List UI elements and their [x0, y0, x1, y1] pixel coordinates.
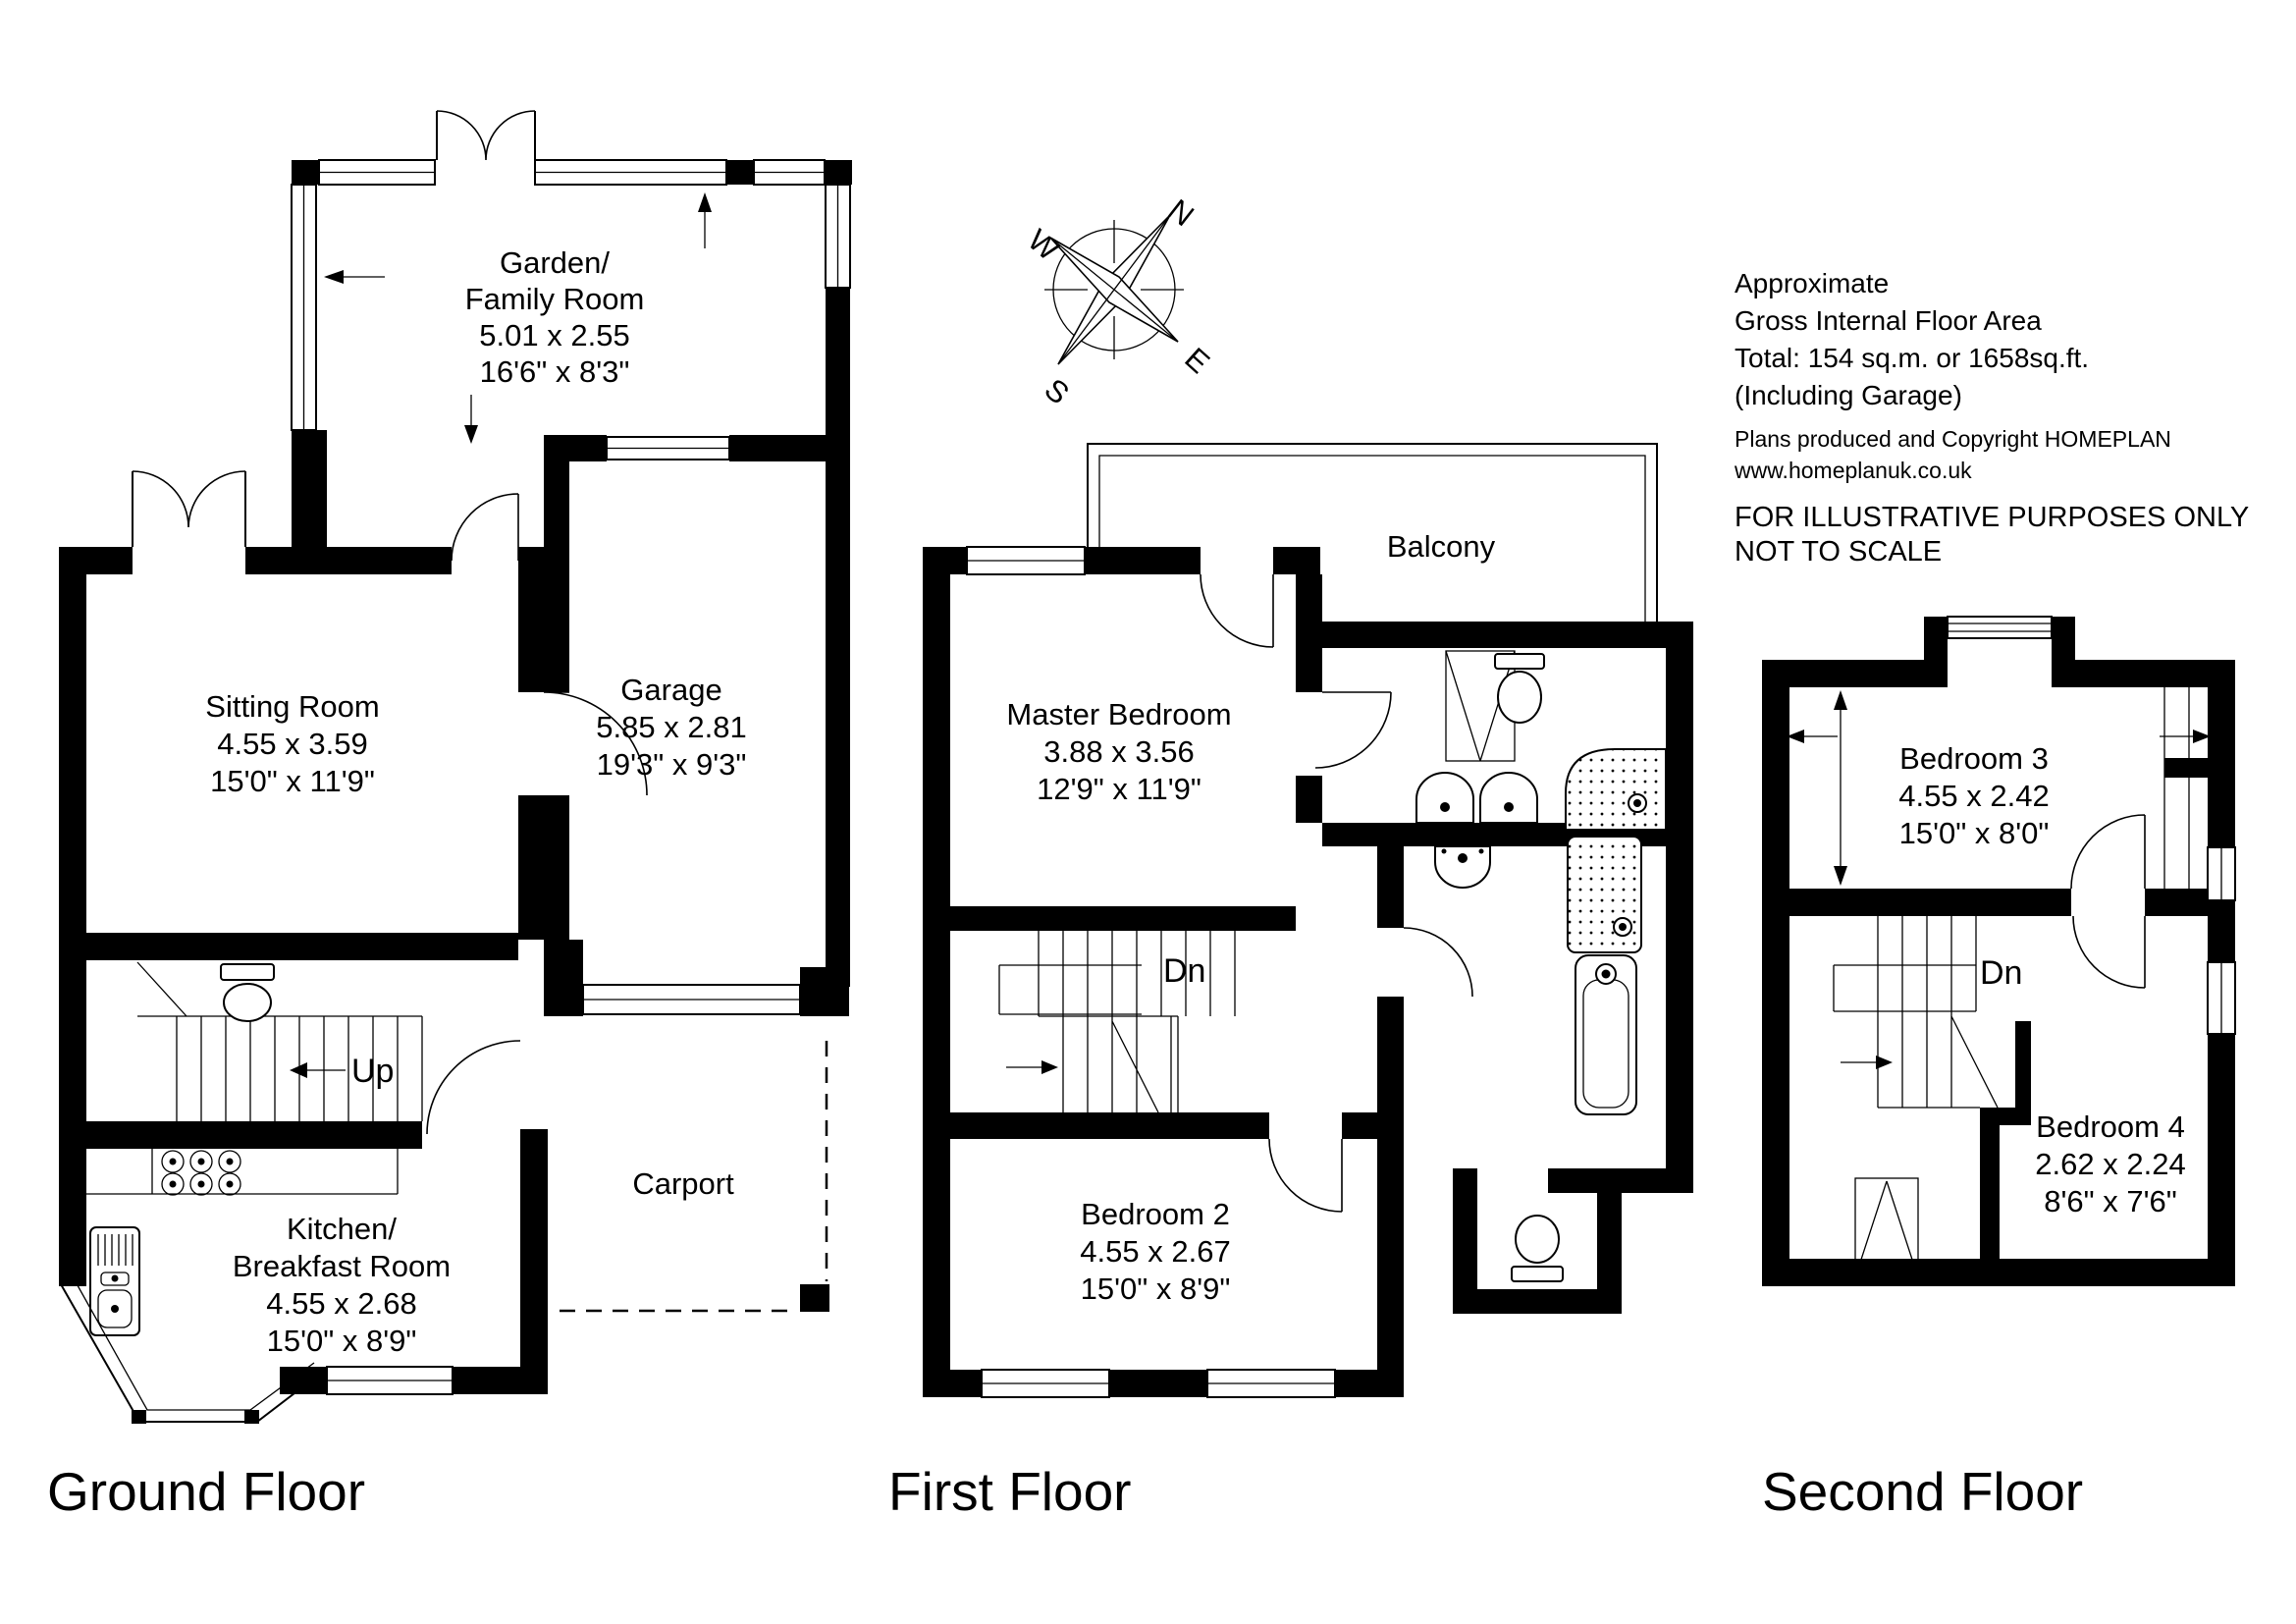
garage-name: Garage — [620, 673, 721, 707]
bedroom4-name: Bedroom 4 — [2036, 1110, 2185, 1144]
floorplan-canvas: Garden/ Family Room 5.01 x 2.55 16'6" x … — [0, 0, 2296, 1624]
kitchen-name-2: Breakfast Room — [233, 1249, 451, 1283]
master-bedroom-name: Master Bedroom — [1006, 697, 1231, 731]
sitting-door-arcs — [133, 471, 245, 527]
garden-room-dim-ft: 16'6" x 8'3" — [480, 354, 630, 389]
carport-name: Carport — [632, 1166, 734, 1201]
disclaimer-line-2: NOT TO SCALE — [1735, 536, 1942, 568]
copyright-line-1: Plans produced and Copyright HOMEPLAN — [1735, 426, 2171, 452]
bedroom4-door-arc — [2073, 916, 2145, 988]
main-shower — [1568, 837, 1641, 952]
bedroom4-dim-ft: 8'6" x 7'6" — [2044, 1184, 2177, 1218]
basin-left — [1416, 773, 1473, 823]
first-windows — [967, 547, 1335, 1397]
copyright-line-2: www.homeplanuk.co.uk — [1734, 458, 1972, 483]
garden-door-arcs — [437, 111, 535, 160]
second-floor-plan: Bedroom 3 4.55 x 2.42 15'0" x 8'0" Bedro… — [1762, 617, 2235, 1522]
garage-dim-ft: 19'3" x 9'3" — [597, 747, 747, 782]
master-bedroom-dim-m: 3.88 x 3.56 — [1043, 734, 1194, 769]
front-door-arc — [427, 1041, 520, 1134]
garden-room-name-1: Garden/ — [500, 245, 610, 280]
disclaimer-line-1: FOR ILLUSTRATIVE PURPOSES ONLY — [1735, 502, 2249, 533]
bath — [1575, 955, 1636, 1114]
dn-label-first: Dn — [1163, 952, 1205, 990]
balcony-name: Balcony — [1387, 529, 1496, 564]
kitchen-dim-m: 4.55 x 2.68 — [266, 1286, 416, 1321]
first-floor-title: First Floor — [888, 1461, 1132, 1522]
sitting-room-name: Sitting Room — [205, 689, 379, 724]
kitchen-hob — [86, 1149, 398, 1195]
dn-arrow-head-first — [1041, 1060, 1058, 1074]
second-floor-title: Second Floor — [1762, 1461, 2083, 1522]
bedroom4-dim-m: 2.62 x 2.24 — [2035, 1147, 2185, 1181]
info-block: Approximate Gross Internal Floor Area To… — [1734, 268, 2249, 568]
ground-stairs — [137, 962, 422, 1121]
hall-to-garden-door-arc — [452, 494, 518, 561]
ensuite-toilet — [1495, 654, 1544, 723]
compass-s: S — [1039, 372, 1076, 411]
compass-n: N — [1162, 192, 1201, 233]
first-floor-plan: Master Bedroom 3.88 x 3.56 12'9" x 11'9"… — [888, 444, 1693, 1522]
compass-rose: N W S E — [1022, 192, 1217, 411]
ground-floor-title: Ground Floor — [47, 1461, 365, 1522]
info-line-4: (Including Garage) — [1735, 380, 1962, 410]
info-line-3: Total: 154 sq.m. or 1658sq.ft. — [1735, 343, 2089, 373]
kitchen-sink — [90, 1227, 139, 1335]
dn-label-second: Dn — [1980, 954, 2022, 992]
garden-room-dim-m: 5.01 x 2.55 — [479, 318, 629, 352]
wc-toilet — [221, 964, 274, 1021]
garage-dim-m: 5.85 x 2.81 — [596, 710, 746, 744]
sitting-room-dim-ft: 15'0" x 11'9" — [210, 764, 375, 798]
wc-toilet-first — [1512, 1216, 1563, 1281]
up-arrow-head — [290, 1062, 307, 1078]
compass-e: E — [1178, 341, 1216, 380]
info-line-2: Gross Internal Floor Area — [1735, 305, 2042, 336]
garden-room-name-2: Family Room — [465, 282, 645, 316]
wardrobe — [1855, 1178, 1918, 1271]
basin-lower — [1435, 846, 1490, 888]
sitting-room-dim-m: 4.55 x 3.59 — [217, 727, 367, 761]
up-label: Up — [351, 1053, 394, 1090]
bathroom-door-arc — [1404, 928, 1472, 997]
info-line-1: Approximate — [1735, 268, 1889, 298]
ground-floor-plan: Garden/ Family Room 5.01 x 2.55 16'6" x … — [47, 111, 852, 1522]
kitchen-name-1: Kitchen/ — [287, 1212, 397, 1246]
bedroom3-door-arc — [2071, 815, 2145, 889]
bedroom2-dim-ft: 15'0" x 8'9" — [1081, 1272, 1231, 1306]
bedroom2-door-arc — [1269, 1139, 1342, 1212]
basin-right — [1480, 773, 1537, 823]
closet-partition — [2164, 687, 2189, 889]
balcony-door-arc — [1201, 574, 1273, 647]
master-door-arc — [1315, 692, 1391, 768]
balcony-outline — [1088, 444, 1657, 637]
bedroom2-dim-m: 4.55 x 2.67 — [1080, 1234, 1230, 1269]
bedroom2-name: Bedroom 2 — [1081, 1197, 1230, 1231]
bedroom3-name: Bedroom 3 — [1899, 741, 2049, 776]
bedroom3-dim-ft: 15'0" x 8'0" — [1899, 816, 2050, 850]
corner-shower — [1566, 749, 1666, 830]
sitting-door-leaves — [133, 471, 245, 547]
master-bedroom-dim-ft: 12'9" x 11'9" — [1037, 772, 1201, 806]
bedroom3-dim-m: 4.55 x 2.42 — [1898, 779, 2049, 813]
second-stairs — [1834, 916, 1998, 1108]
dn-arrow-head-second — [1876, 1056, 1893, 1069]
kitchen-dim-ft: 15'0" x 8'9" — [267, 1324, 417, 1358]
compass-w: W — [1022, 223, 1066, 268]
